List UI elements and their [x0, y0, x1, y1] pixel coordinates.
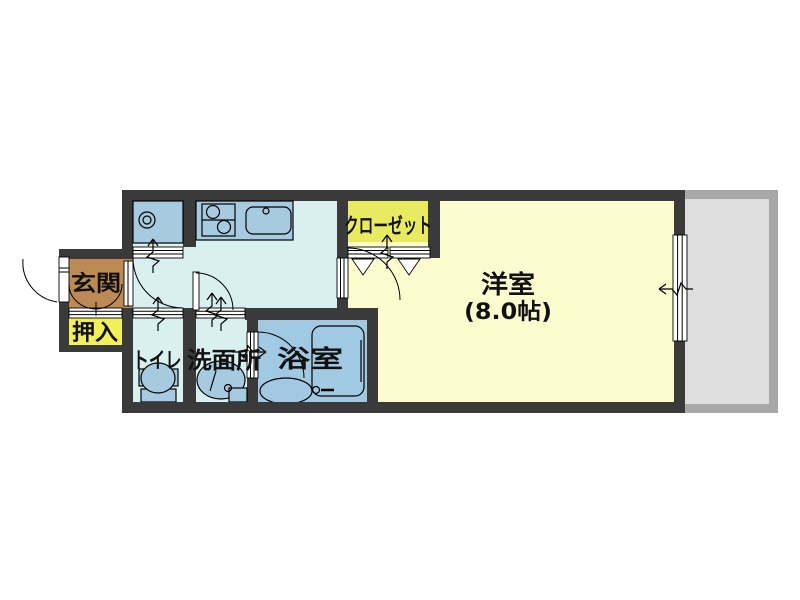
label-closet: クローゼット	[344, 214, 432, 238]
closet-sill-right	[390, 247, 430, 258]
wall-bottom-patch	[122, 402, 685, 413]
wall-bath-right	[367, 308, 378, 402]
western-door-sill	[337, 258, 348, 298]
label-oshiire: 押入	[72, 320, 118, 346]
balcony-floor	[685, 199, 769, 404]
wall-laundry-stub	[183, 190, 196, 247]
laundry-door-sill	[133, 247, 183, 258]
washing-machine-pad	[133, 201, 183, 243]
label-bathroom: 浴室	[277, 345, 343, 373]
label-western: 洋室	[481, 270, 535, 299]
floorplan-page: 玄関 押入 トイレ 洗面所 浴室 クローゼット 洋室 (8.0帖)	[0, 0, 800, 600]
label-washroom: 洗面所	[187, 348, 261, 374]
label-toilet: トイレ	[133, 349, 182, 374]
wall-washroom-bath-upper	[247, 308, 258, 332]
label-western-size: (8.0帖)	[464, 300, 552, 325]
front-door-frame	[59, 257, 69, 302]
wall-bath-top	[245, 308, 378, 320]
kitchen-door-leaf	[193, 272, 199, 310]
balcony	[685, 190, 778, 413]
wall-washroom-bath-lower	[247, 378, 258, 402]
floorplan-drawing: 玄関 押入 トイレ 洗面所 浴室 クローゼット 洋室 (8.0帖)	[0, 0, 800, 600]
vanity-corner	[229, 388, 247, 402]
label-genkan: 玄関	[71, 271, 121, 297]
